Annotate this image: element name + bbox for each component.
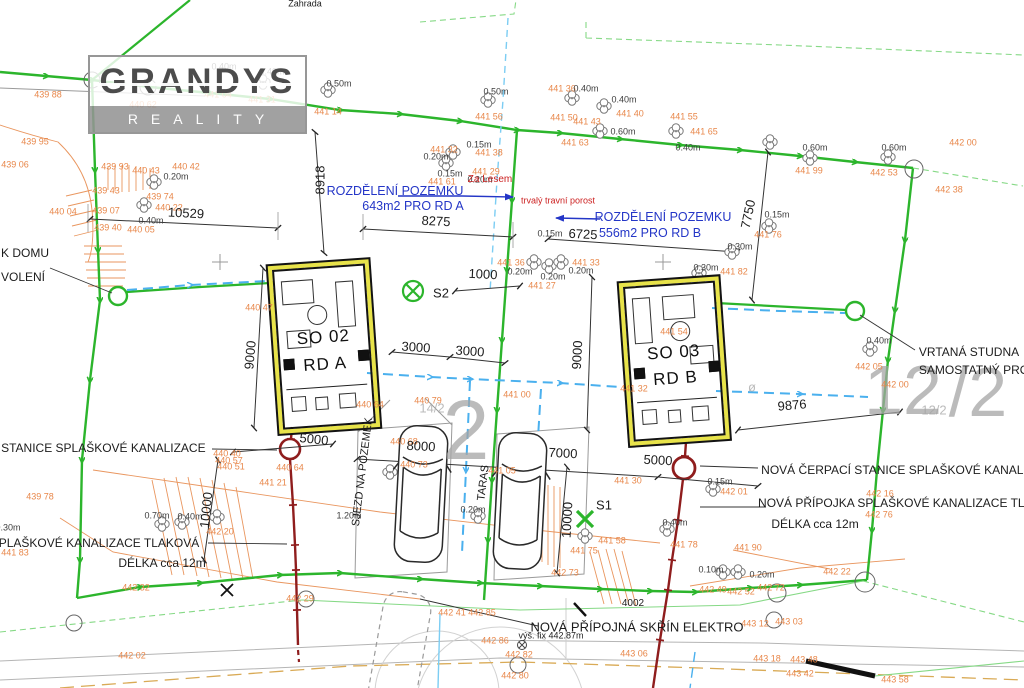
logo-subtitle-area: REALITY [90, 106, 305, 132]
fixture [642, 409, 658, 425]
logo-stripe [96, 83, 299, 86]
building-rd-a: SO 02 RD A [272, 264, 376, 430]
contour-hatching [0, 125, 905, 606]
grandys-logo: GRANDYS REALITY [88, 55, 307, 134]
leader-lines [50, 268, 915, 626]
fixture [291, 396, 307, 412]
furniture [632, 297, 653, 344]
building-name: RD A [280, 351, 370, 377]
fixture [668, 409, 682, 423]
logo-subtitle: REALITY [118, 111, 277, 127]
fixture [692, 405, 710, 421]
building-rd-b: SO 03 RD B [623, 281, 726, 442]
furniture [662, 294, 696, 320]
logo-title: GRANDYS [99, 62, 295, 102]
gas-line [60, 662, 1024, 688]
table [670, 320, 691, 341]
furniture [335, 280, 356, 327]
fixture [339, 392, 357, 408]
fixture [315, 396, 329, 410]
interior-wall [286, 384, 368, 391]
dimension-lines [88, 132, 900, 573]
plot-division-arrows [398, 196, 600, 219]
site-plan-canvas: SO 02 RD A SO 03 RD B 14/2212/212/2ø 441… [0, 0, 1024, 688]
furniture [281, 279, 315, 305]
table [307, 304, 328, 325]
interior-wall [637, 397, 718, 404]
logo-title-area: GRANDYS [90, 57, 305, 106]
building-code: SO 02 [278, 325, 368, 351]
